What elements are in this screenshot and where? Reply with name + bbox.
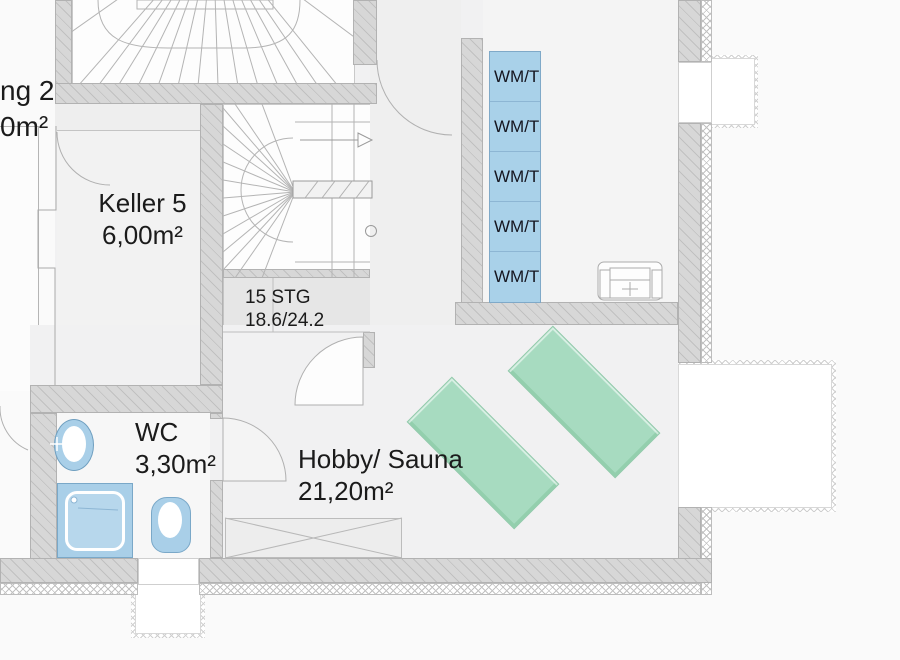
clipped-room-name: ng 2 bbox=[0, 74, 55, 108]
room-name: Hobby/ Sauna bbox=[298, 444, 463, 476]
room-name: WC bbox=[135, 417, 216, 449]
sink-faucet-cross bbox=[50, 437, 64, 451]
shower-lines bbox=[71, 497, 118, 510]
neighbor-door-arc bbox=[0, 406, 28, 450]
keller-partition bbox=[38, 126, 56, 385]
clipped-room-area: 0m² bbox=[0, 110, 48, 144]
stair-dimensions: 18.6/24.2 bbox=[245, 309, 324, 332]
room-area: 3,30m² bbox=[135, 449, 216, 481]
room-label-wc: WC 3,30m² bbox=[135, 417, 216, 480]
utility-sink bbox=[598, 262, 662, 300]
stair-steps: 15 STG bbox=[245, 286, 324, 309]
room-label-keller: Keller 5 6,00m² bbox=[80, 188, 205, 251]
room-area: 21,20m² bbox=[298, 476, 463, 508]
keller-door-arc bbox=[57, 132, 110, 185]
room-area: 6,00m² bbox=[80, 220, 205, 252]
plan-linework bbox=[0, 0, 900, 660]
stair-annotation: 15 STG 18.6/24.2 bbox=[245, 286, 324, 332]
room-name: Keller 5 bbox=[80, 188, 205, 220]
floor-plan: WM/T WM/T WM/T WM/T WM/T bbox=[0, 0, 900, 660]
laundry-door-arc bbox=[377, 60, 452, 135]
stairs-upper bbox=[60, 0, 365, 86]
door-arcs bbox=[0, 60, 452, 481]
stair-spindle bbox=[293, 181, 372, 198]
hobby-door-arc bbox=[295, 337, 363, 405]
room-label-hobby: Hobby/ Sauna 21,20m² bbox=[298, 444, 463, 507]
wc-door-arc bbox=[223, 418, 286, 481]
bench-cross bbox=[225, 518, 402, 558]
